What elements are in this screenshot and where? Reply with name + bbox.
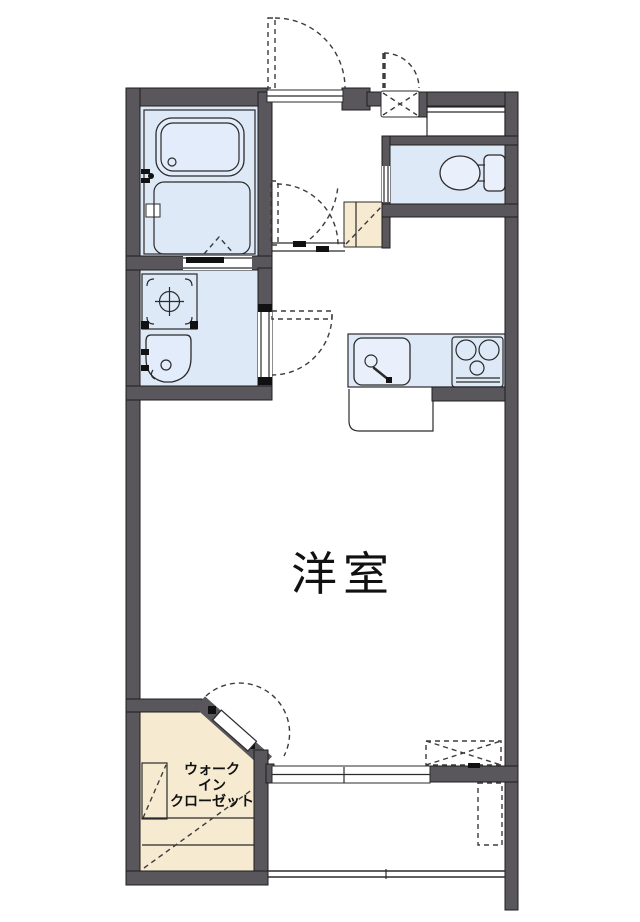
- toilet-niche: [427, 107, 505, 136]
- door-swing-arc: [275, 18, 345, 88]
- floor-plan-canvas: 洋室 ウォーク イン クローゼット: [0, 0, 640, 922]
- shoe-cabinet-icon: [344, 202, 385, 247]
- hall-door-swing: [271, 181, 338, 245]
- kitchen-floor-edge: [349, 389, 433, 431]
- balcony-railing: [268, 869, 505, 879]
- kitchen-counter: [348, 334, 505, 387]
- door-swing-arc: [310, 185, 338, 239]
- entrance-step: [268, 241, 345, 252]
- door-swing-arc: [384, 53, 419, 88]
- bathtub-icon: [156, 118, 244, 176]
- floor-plan: 洋室 ウォーク イン クローゼット: [0, 0, 640, 922]
- door-swing-arc: [277, 184, 338, 245]
- entrance-door-icon: [267, 18, 345, 102]
- meter-box-icon: [381, 53, 419, 117]
- door-swing-arc: [272, 315, 332, 375]
- closet-label-line3: クローゼット: [170, 793, 254, 809]
- closet-label-line1: ウォーク: [184, 761, 240, 777]
- closet-label-line2: イン: [198, 777, 226, 793]
- kitchen-sink-icon: [354, 338, 410, 385]
- living-room-label: 洋室: [291, 548, 395, 600]
- washroom-door: [258, 304, 332, 385]
- bath-door: [183, 256, 252, 270]
- toilet-icon: [440, 155, 505, 191]
- ac-outdoor-unit-icon: [478, 783, 502, 845]
- air-conditioner-icon: [426, 741, 501, 768]
- sliding-window-icon: [272, 766, 430, 783]
